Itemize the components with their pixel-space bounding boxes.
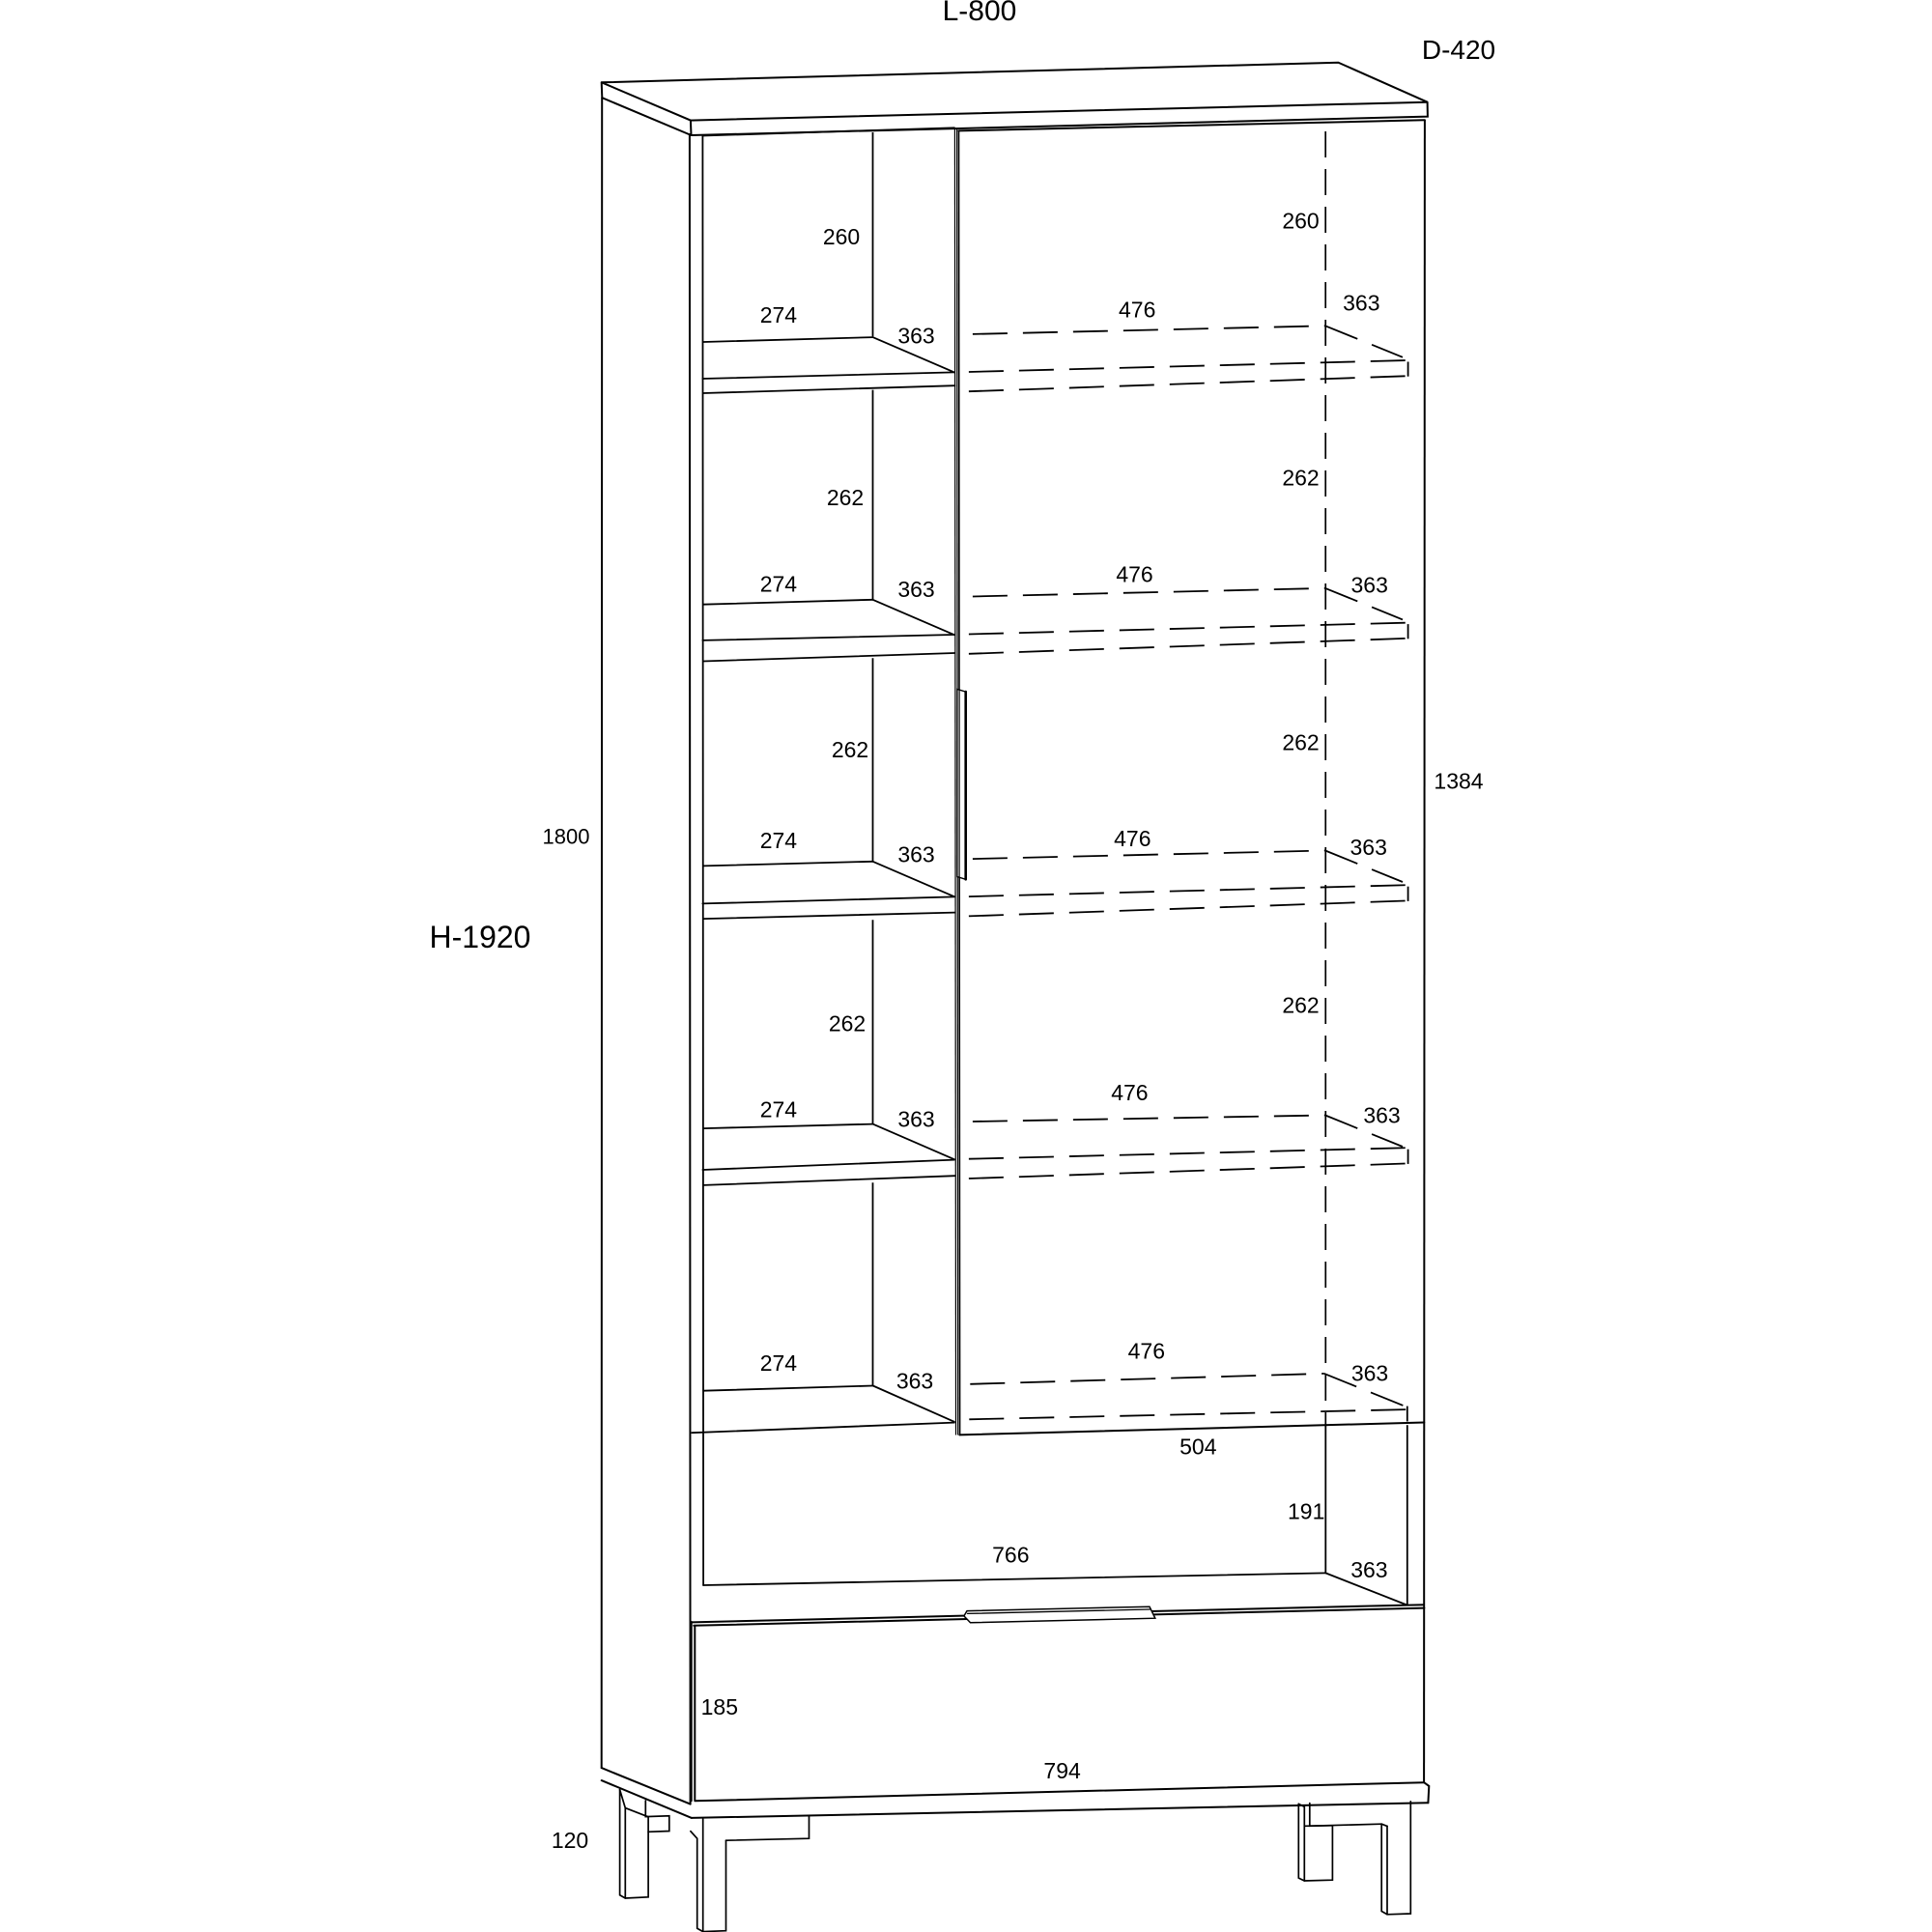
svg-text:262: 262 bbox=[1282, 465, 1319, 490]
svg-text:363: 363 bbox=[896, 1369, 933, 1394]
svg-text:1384: 1384 bbox=[1434, 768, 1483, 793]
svg-text:363: 363 bbox=[1343, 291, 1379, 316]
svg-text:766: 766 bbox=[992, 1543, 1029, 1568]
svg-text:274: 274 bbox=[760, 572, 798, 597]
svg-text:D-420: D-420 bbox=[1422, 35, 1495, 65]
svg-text:262: 262 bbox=[829, 1011, 866, 1037]
svg-text:262: 262 bbox=[1282, 729, 1319, 754]
svg-text:476: 476 bbox=[1111, 1080, 1148, 1105]
svg-text:476: 476 bbox=[1119, 297, 1155, 322]
svg-text:274: 274 bbox=[760, 302, 798, 327]
svg-text:260: 260 bbox=[823, 224, 860, 249]
svg-text:363: 363 bbox=[1350, 835, 1387, 860]
svg-text:185: 185 bbox=[701, 1694, 738, 1719]
svg-text:476: 476 bbox=[1116, 561, 1152, 586]
svg-text:476: 476 bbox=[1114, 826, 1151, 851]
svg-text:504: 504 bbox=[1179, 1435, 1217, 1460]
svg-text:120: 120 bbox=[552, 1828, 588, 1853]
svg-text:274: 274 bbox=[760, 828, 798, 853]
svg-text:363: 363 bbox=[1351, 1361, 1388, 1386]
svg-text:262: 262 bbox=[827, 485, 864, 510]
svg-text:363: 363 bbox=[1363, 1103, 1400, 1128]
svg-text:H-1920: H-1920 bbox=[430, 920, 531, 954]
svg-text:260: 260 bbox=[1282, 208, 1319, 233]
svg-text:363: 363 bbox=[897, 577, 934, 602]
svg-text:191: 191 bbox=[1288, 1499, 1324, 1524]
svg-text:363: 363 bbox=[897, 324, 934, 349]
svg-text:363: 363 bbox=[1351, 573, 1388, 598]
svg-text:363: 363 bbox=[1350, 1557, 1387, 1582]
svg-text:262: 262 bbox=[832, 737, 868, 762]
svg-text:274: 274 bbox=[760, 1097, 798, 1122]
svg-text:262: 262 bbox=[1282, 992, 1319, 1017]
svg-text:794: 794 bbox=[1043, 1758, 1081, 1783]
svg-text:274: 274 bbox=[760, 1350, 798, 1376]
svg-text:363: 363 bbox=[897, 1106, 934, 1131]
svg-text:1800: 1800 bbox=[543, 824, 590, 848]
svg-text:363: 363 bbox=[897, 841, 934, 867]
svg-text:L-800: L-800 bbox=[943, 0, 1017, 27]
svg-text:476: 476 bbox=[1128, 1338, 1165, 1363]
